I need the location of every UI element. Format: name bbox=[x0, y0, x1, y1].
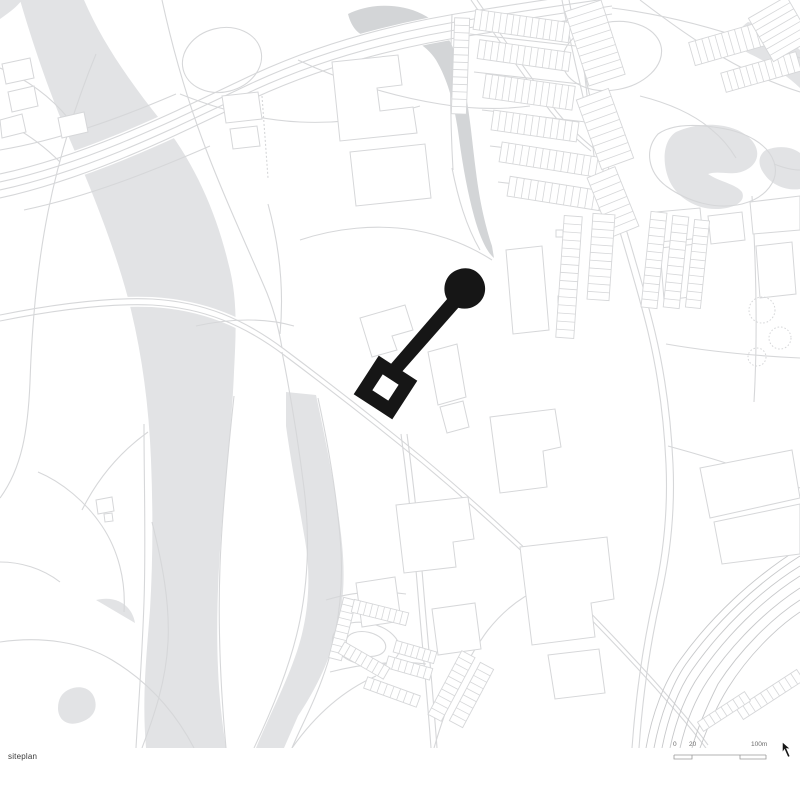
pond-southwest bbox=[96, 599, 135, 623]
canal-lower bbox=[256, 392, 344, 748]
siteplan-drawing bbox=[0, 0, 800, 748]
site-head bbox=[444, 268, 485, 308]
sheet-caption: siteplan bbox=[8, 752, 37, 761]
tree bbox=[748, 348, 766, 366]
top-left-corner-water bbox=[0, 0, 22, 19]
pond bbox=[665, 125, 758, 209]
tree bbox=[749, 297, 775, 323]
scale-bar-graphic bbox=[668, 740, 774, 764]
scale-bar: 0 20 100m bbox=[668, 740, 774, 764]
tree bbox=[769, 327, 791, 349]
pond-southwest-2 bbox=[58, 687, 96, 723]
pond-east bbox=[759, 147, 800, 189]
north-arrow-icon bbox=[778, 741, 794, 759]
siteplan-sheet: siteplan 0 20 100m bbox=[0, 0, 800, 800]
siteplan-map bbox=[0, 0, 800, 748]
